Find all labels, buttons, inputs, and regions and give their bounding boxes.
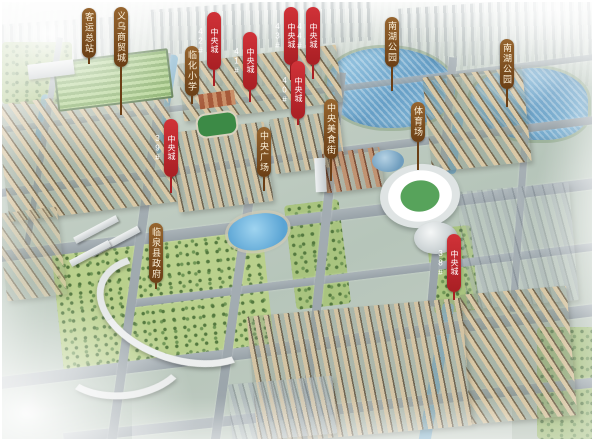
label-central-city-38: 中央城38# [447,234,461,292]
label-central-plaza: 中央广场 [257,127,271,177]
label-central-city-39: 中央城39# [164,119,178,177]
label-central-city-41: 中央城41# [243,32,257,90]
high-rise-tower [314,158,327,193]
label-central-city-40: 中央城40# [291,61,305,119]
label-south-lake-park-west: 南湖公园 [385,17,399,67]
label-central-city-44: 中央城44# [306,7,320,65]
label-linquan-county-government: 临泉县政府 [149,223,163,283]
aerial-masterplan-rendering: 客运总站 义乌商贸城 临化小学 中央城42# 中央城41# 中央城43# 中央城… [2,2,592,439]
label-central-food-street: 中央美食街 [324,99,338,159]
label-central-city-42: 中央城42# [207,12,221,70]
label-passenger-terminal: 客运总站 [82,8,96,58]
label-south-lake-park-east: 南湖公园 [500,39,514,89]
label-yiwu-trade-city: 义乌商贸城 [114,7,128,67]
residential-cluster-southeast [460,286,578,425]
page-background: 客运总站 义乌商贸城 临化小学 中央城42# 中央城41# 中央城43# 中央城… [0,0,600,445]
residential-cluster-south-low [228,376,338,439]
label-stadium: 体育场 [411,102,425,142]
residential-cluster-southwest [2,207,67,302]
residential-cluster-east [422,67,531,172]
round-blue-roof-building [372,150,404,172]
